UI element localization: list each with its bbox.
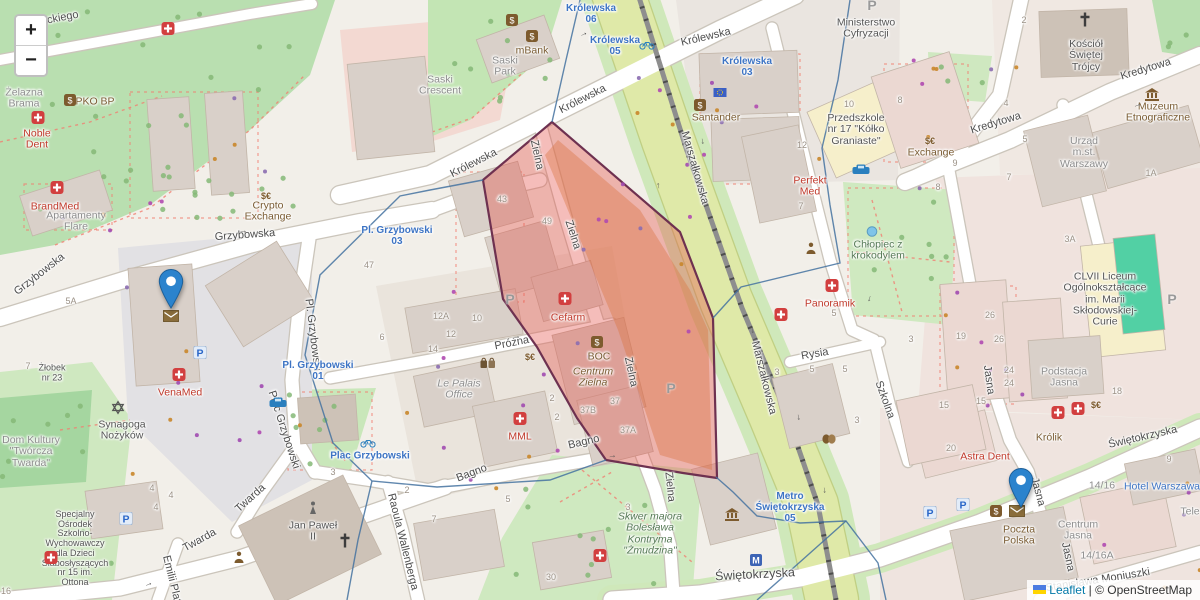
tree [1184, 32, 1189, 37]
poi-dot [989, 67, 993, 71]
tree [11, 418, 16, 423]
poi-dot [687, 329, 691, 333]
tree [945, 78, 950, 83]
poi-dot [442, 446, 446, 450]
tree [146, 123, 151, 128]
tree [488, 19, 493, 24]
poi-dot [131, 472, 135, 476]
tree [505, 38, 510, 43]
tree [317, 427, 322, 432]
poi-dot [988, 368, 992, 372]
poi-dot [232, 96, 236, 100]
tree [109, 561, 114, 566]
poi-dot [1185, 482, 1189, 486]
tree [651, 581, 656, 586]
openstreetmap-link[interactable]: © OpenStreetMap [1095, 583, 1192, 597]
poi-dot [582, 248, 586, 252]
poi-dot [817, 157, 821, 161]
tree [160, 207, 165, 212]
poi-dot [918, 186, 922, 190]
poi-dot [926, 135, 930, 139]
poi-dot [587, 354, 591, 358]
poi-dot [955, 365, 959, 369]
poi-dot [102, 214, 106, 218]
tree [926, 242, 931, 247]
tree [929, 276, 934, 281]
poi-dot [688, 215, 692, 219]
tree [257, 44, 262, 49]
poi-dot [1014, 65, 1018, 69]
tree [939, 64, 944, 69]
tree [331, 404, 336, 409]
tree [944, 254, 949, 259]
poi-dot [494, 486, 498, 490]
poi-dot [542, 373, 546, 377]
poi-dot [168, 418, 172, 422]
tree [654, 537, 659, 542]
poi-dot [260, 384, 264, 388]
poi-dot [638, 226, 642, 230]
tree [577, 533, 582, 538]
poi-dot [637, 76, 641, 80]
tree [206, 178, 211, 183]
building [1039, 8, 1129, 77]
poi-dot [621, 182, 625, 186]
tree [197, 12, 202, 17]
zoom-out-button[interactable]: − [16, 46, 46, 75]
tree [50, 102, 55, 107]
tree [179, 113, 184, 118]
tree [80, 449, 85, 454]
tree [543, 76, 548, 81]
tree [78, 404, 83, 409]
tree [161, 173, 166, 178]
poi-dot [195, 433, 199, 437]
building [940, 280, 1014, 402]
leaflet-map[interactable]: GrzybowskaGrzybowskaKrólewskaKrólewskaKr… [0, 0, 1200, 600]
poi-dot [184, 349, 188, 353]
building [85, 481, 163, 539]
poi-dot [1182, 512, 1186, 516]
tree [194, 215, 199, 220]
building [297, 394, 358, 444]
poi-dot [658, 88, 662, 92]
attribution-bar: Leaflet | © OpenStreetMap [1027, 580, 1200, 600]
poi-dot [61, 216, 65, 220]
tree [165, 165, 170, 170]
tree [668, 474, 673, 479]
tree [85, 9, 90, 14]
poi-dot [685, 163, 689, 167]
poi-dot [635, 111, 639, 115]
leaflet-link[interactable]: Leaflet [1049, 583, 1085, 597]
poi-dot [576, 341, 580, 345]
tree [192, 193, 197, 198]
tree [229, 192, 234, 197]
poi-dot [213, 157, 217, 161]
tree [872, 267, 877, 272]
tree [91, 149, 96, 154]
tree [0, 474, 5, 479]
tree [606, 527, 611, 532]
poi-dot [521, 403, 525, 407]
poi-dot [469, 478, 473, 482]
poi-dot [125, 285, 129, 289]
tree [38, 206, 43, 211]
tree [101, 174, 106, 179]
poi-dot [720, 120, 724, 124]
tree [468, 66, 473, 71]
tree [217, 216, 222, 221]
poi-dot [1020, 393, 1024, 397]
tree [642, 503, 647, 508]
attribution-separator: | [1089, 583, 1092, 597]
map-pin-marker[interactable] [1008, 468, 1034, 513]
poi-dot [597, 218, 601, 222]
tree [505, 71, 510, 76]
poi-dot [920, 82, 924, 86]
building [204, 91, 249, 195]
tree [307, 461, 312, 466]
tree [124, 178, 129, 183]
tree [80, 529, 85, 534]
tree [294, 425, 299, 430]
tree [523, 487, 528, 492]
poi-dot [442, 356, 446, 360]
poi-dot [1102, 543, 1106, 547]
map-pin-marker[interactable] [158, 269, 184, 314]
zoom-in-button[interactable]: + [16, 16, 46, 46]
poi-dot [702, 153, 706, 157]
tree [230, 209, 235, 214]
tree [287, 44, 292, 49]
tree [140, 42, 145, 47]
tree [55, 33, 60, 38]
poi-dot [986, 403, 990, 407]
tree [929, 254, 934, 259]
road [790, 342, 880, 362]
tree [498, 95, 503, 100]
poi-dot [679, 262, 683, 266]
poi-dot [1187, 491, 1191, 495]
poi-dot [452, 290, 456, 294]
tree [931, 200, 936, 205]
tree [184, 122, 189, 127]
poi-dot [298, 423, 302, 427]
tree [591, 536, 596, 541]
ukraine-flag-icon [1033, 585, 1046, 594]
poi-dot [912, 58, 916, 62]
tree [980, 80, 985, 85]
poi-dot [934, 67, 938, 71]
tree [452, 61, 457, 66]
tree [287, 392, 292, 397]
poi-dot [715, 108, 719, 112]
tree [167, 174, 172, 179]
poi-dot [754, 105, 758, 109]
tree [281, 176, 286, 181]
poi-dot [979, 340, 983, 344]
tree [93, 114, 98, 119]
poi-dot [671, 122, 675, 126]
poi-dot [527, 455, 531, 459]
poi-dot [1004, 368, 1008, 372]
tree [256, 87, 261, 92]
tree [899, 235, 904, 240]
tree [514, 572, 519, 577]
poi-dot [238, 438, 242, 442]
poi-dot [710, 81, 714, 85]
tree [291, 413, 296, 418]
tree [82, 568, 87, 573]
tree [45, 422, 50, 427]
tree [259, 186, 264, 191]
tree [65, 413, 70, 418]
poi-dot [263, 169, 267, 173]
poi-dot [257, 430, 261, 434]
building [347, 56, 435, 160]
tree [1166, 44, 1171, 49]
zoom-control: + − [14, 14, 48, 77]
poi-dot [148, 201, 152, 205]
poi-dot [108, 228, 112, 232]
poi-dot [944, 313, 948, 317]
tree [547, 57, 552, 62]
tree [585, 573, 590, 578]
poi-dot [955, 291, 959, 295]
poi-dot [176, 381, 180, 385]
poi-dot [160, 200, 164, 204]
tree [589, 562, 594, 567]
tree [175, 15, 180, 20]
poi-dot [233, 143, 237, 147]
poi-dot [604, 219, 608, 223]
tree [208, 75, 213, 80]
tree [290, 203, 295, 208]
poi-dot [436, 365, 440, 369]
building [1028, 336, 1104, 399]
tree [6, 459, 11, 464]
poi-dot [405, 411, 409, 415]
tree [525, 504, 530, 509]
tree [128, 168, 133, 173]
landuse-area [843, 182, 958, 325]
poi-dot [556, 449, 560, 453]
